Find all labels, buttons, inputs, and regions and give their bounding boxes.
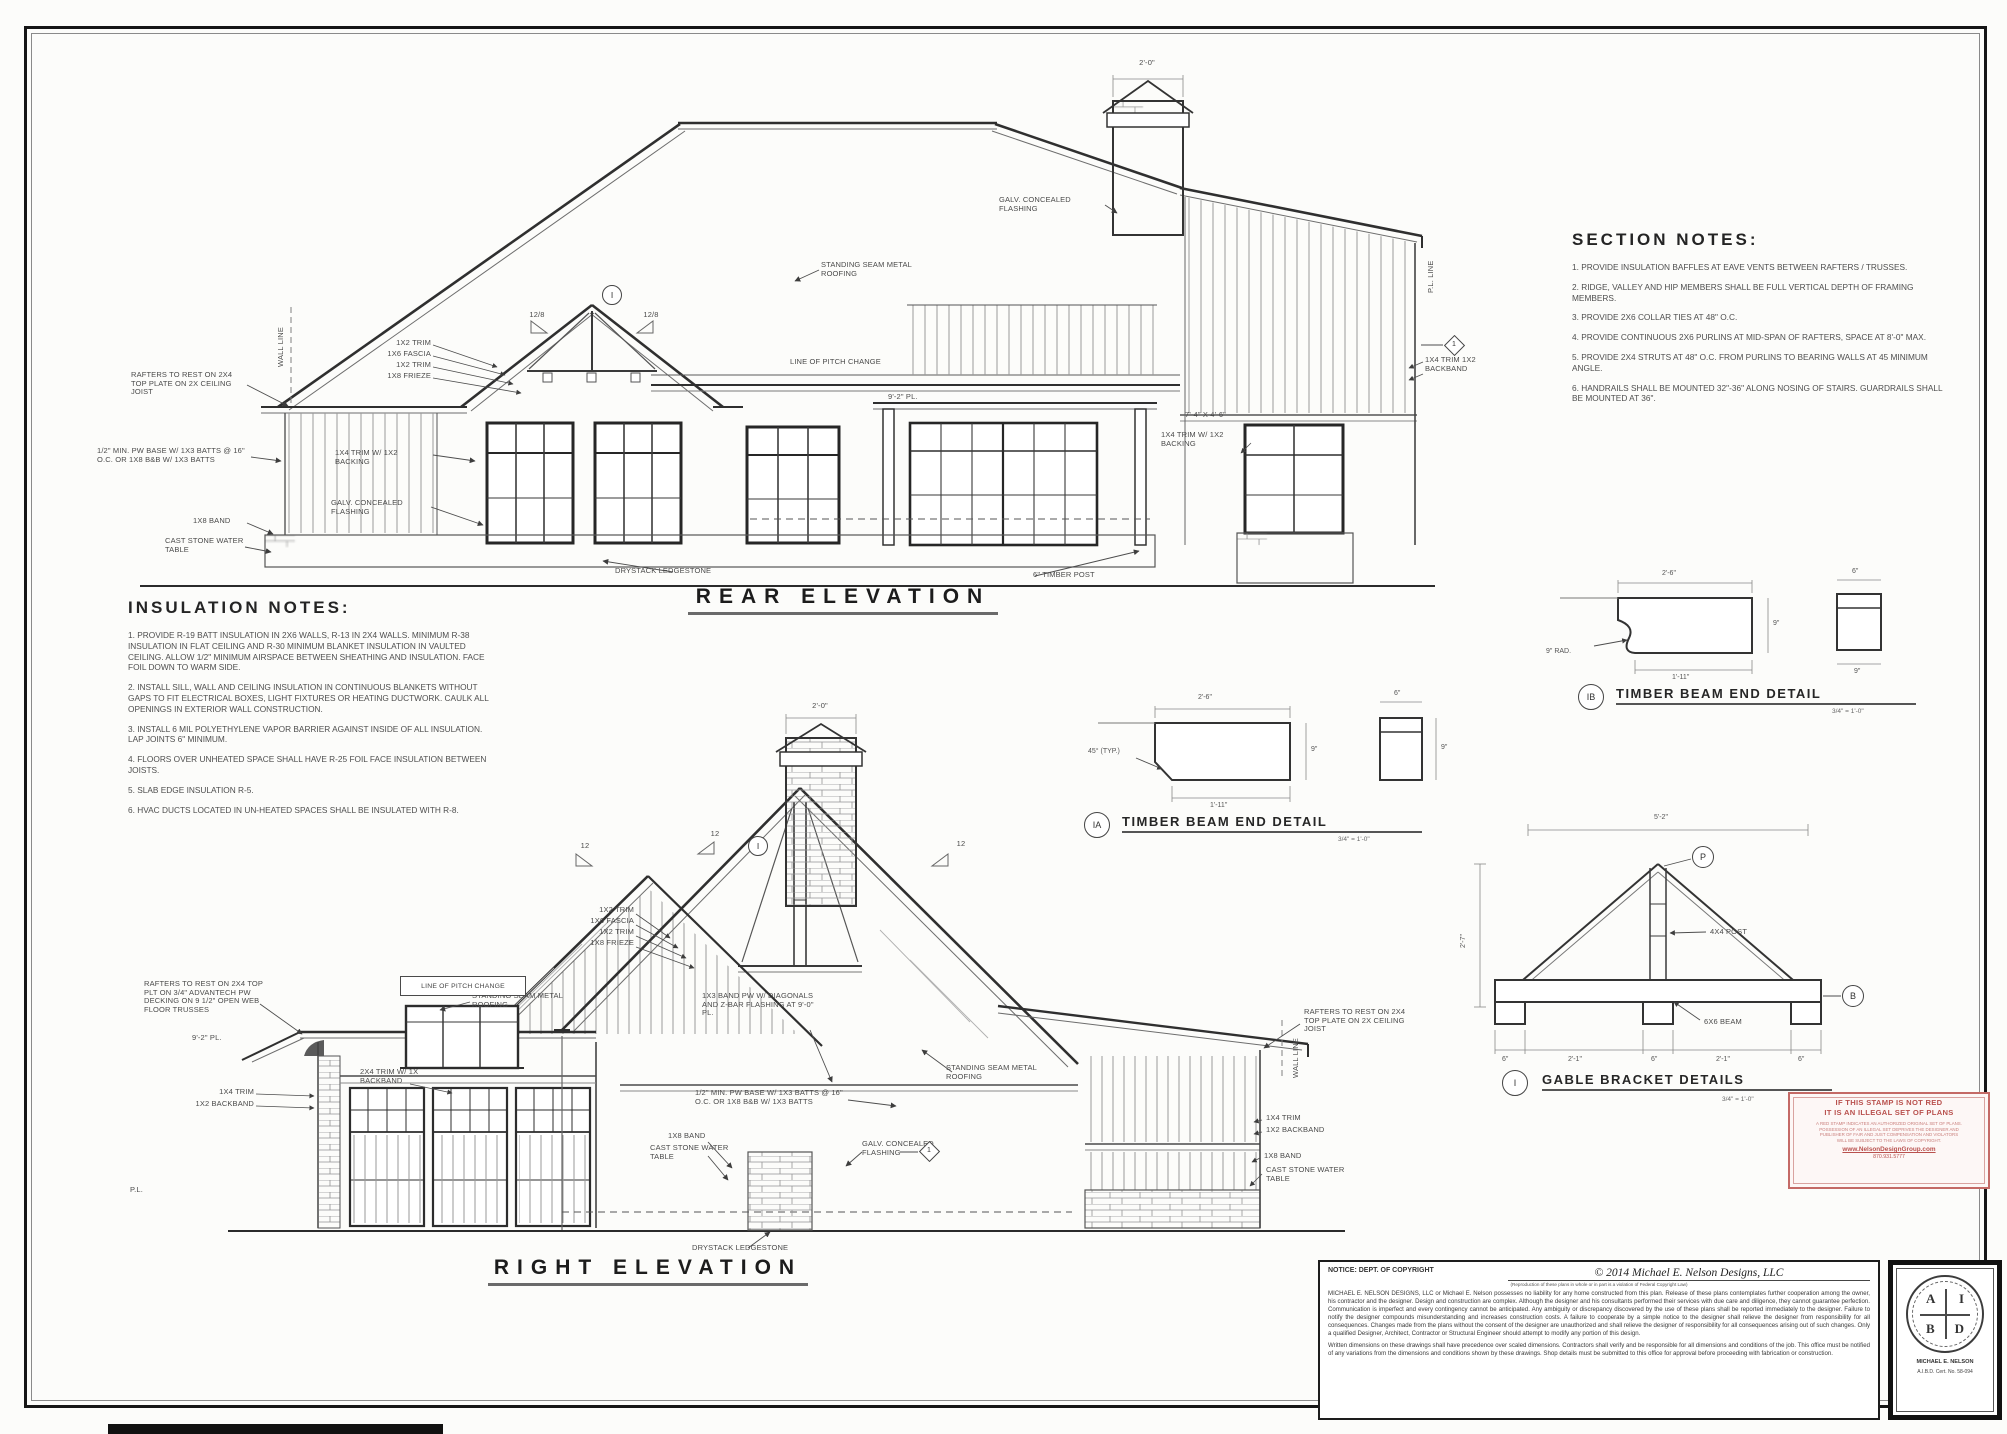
callout-plate: 9'-2" PL.: [888, 393, 948, 402]
gable-dim-top: 5'-2": [1654, 814, 1668, 821]
section-note-4: 4. PROVIDE CONTINUOUS 2X6 PURLINS AT MID…: [1572, 332, 1952, 343]
callout-rafters-ceiling: RAFTERS TO REST ON 2X4 TOP PLATE ON 2X C…: [1304, 1008, 1416, 1034]
stamp-small-3: PUBLISHER OF FAIR AND JUST COMPENSATION …: [1796, 1132, 1982, 1138]
section-marker-number: 1: [1447, 341, 1461, 348]
seal-letter-i: I: [1959, 1291, 1964, 1307]
callout-rafters: RAFTERS TO REST ON 2X4 TOP PLATE ON 2X C…: [131, 371, 245, 397]
callout-pw-base: 1/2" MIN. PW BASE W/ 1X3 BATTS @ 16" O.C…: [97, 447, 249, 464]
callout-rafters-floor: RAFTERS TO REST ON 2X4 TOP PLT ON 3/4" A…: [144, 980, 274, 1015]
dim-top-b: 2'-6": [1662, 570, 1676, 577]
gable-bracket-marker: I: [602, 285, 622, 305]
callout-trim14-backband: 1X4 TRIM 1X2 BACKBAND: [1425, 356, 1497, 373]
copyright-body-2: Written dimensions on these drawings sha…: [1328, 1342, 1870, 1358]
callout-wall-line: WALL LINE: [277, 327, 286, 367]
callout-seam-roofing: STANDING SEAM METAL ROOFING: [821, 261, 919, 278]
callout-water-table: CAST STONE WATER TABLE: [165, 537, 251, 554]
timber-detail-a-scale: 3/4" = 1'-0": [1338, 836, 1370, 843]
callout-trim12b: 1X2 TRIM: [335, 361, 431, 370]
gable-detail-marker: I: [1502, 1070, 1528, 1096]
insulation-notes: INSULATION NOTES: 1. PROVIDE R-19 BATT I…: [128, 598, 496, 824]
callout-trim12a: 1X2 TRIM: [554, 906, 634, 915]
callout-water-table: CAST STONE WATER TABLE: [650, 1144, 734, 1161]
callout-flashing-chimney: GALV. CONCEALED FLASHING: [999, 196, 1101, 213]
gable-detail-title: GABLE BRACKET DETAILS: [1542, 1072, 1832, 1091]
callout-band: 1X8 BAND: [668, 1132, 728, 1141]
callout-trim14-backing: 1X4 TRIM W/ 1X2 BACKING: [335, 449, 429, 466]
callout-band: 1X8 BAND: [193, 517, 253, 526]
seal-cross-horizontal: [1920, 1314, 1970, 1316]
callout-trim12b: 1X2 TRIM: [538, 928, 634, 937]
pitch-mark-2: 12: [702, 830, 728, 839]
copyright-subtitle: (Reproduction of these plans in whole or…: [1328, 1282, 1870, 1287]
gable-dim-left: 2'-7": [1460, 934, 1467, 948]
chimney-dim: 2'-0": [794, 702, 846, 711]
detail-marker-ia: IA: [1084, 812, 1110, 838]
dim-side-b: 9": [1773, 620, 1779, 627]
section-note-6: 6. HANDRAILS SHALL BE MOUNTED 32"-36" AL…: [1572, 383, 1952, 405]
seal-cert-number: A.I.B.D. Cert. No. 58-094: [1893, 1369, 1997, 1375]
timber-detail-a-title: TIMBER BEAM END DETAIL: [1122, 814, 1422, 833]
callout-backband-2: 1X2 BACKBAND: [1266, 1126, 1351, 1135]
stamp-line-1: IF THIS STAMP IS NOT RED: [1796, 1098, 1982, 1108]
dim-side-a: 9": [1311, 746, 1317, 753]
gable-dim-b1: 6": [1502, 1056, 1508, 1063]
drawing-sheet: RAFTERS TO REST ON 2X4 TOP PLATE ON 2X C…: [0, 0, 2007, 1434]
callout-window-dim: 7'-4" X 4'-6": [1185, 411, 1269, 420]
gable-dim-b3: 6": [1651, 1056, 1657, 1063]
detail-marker-ib: IB: [1578, 684, 1604, 710]
copyright-title: © 2014 Michael E. Nelson Designs, LLC: [1508, 1267, 1870, 1281]
gable-beam-label: 6X6 BEAM: [1704, 1018, 1764, 1027]
section-marker-number: 1: [922, 1147, 936, 1154]
callout-backband: 1X2 BACKBAND: [158, 1100, 254, 1109]
callout-pl: P.L.: [130, 1186, 160, 1195]
dim-end-h-b: 9": [1854, 668, 1860, 675]
callout-frieze: 1X8 FRIEZE: [530, 939, 634, 948]
pitch-change-box: LINE OF PITCH CHANGE: [400, 976, 526, 996]
timber-detail-b-scale: 3/4" = 1'-0": [1832, 708, 1864, 715]
insulation-note-4: 4. FLOORS OVER UNHEATED SPACE SHALL HAVE…: [128, 754, 496, 776]
section-notes: SECTION NOTES: 1. PROVIDE INSULATION BAF…: [1572, 230, 1952, 413]
section-notes-title: SECTION NOTES:: [1572, 230, 1952, 250]
gable-post-label: 4X4 POST: [1710, 928, 1770, 937]
right-elevation-title: RIGHT ELEVATION: [488, 1256, 808, 1286]
scan-artifact-bar: [108, 1424, 443, 1434]
callout-timber-post: 6" TIMBER POST: [1033, 571, 1125, 580]
callout-trim14-2: 1X4 TRIM: [1266, 1114, 1326, 1123]
gable-marker-p: P: [1692, 846, 1714, 868]
seal-letter-a: A: [1926, 1291, 1935, 1307]
callout-band-2: 1X8 BAND: [1264, 1152, 1319, 1161]
section-note-1: 1. PROVIDE INSULATION BAFFLES AT EAVE VE…: [1572, 262, 1952, 273]
dim-bottom-a: 1'-11": [1210, 802, 1227, 809]
aibd-seal-icon: A I B D: [1906, 1275, 1984, 1353]
callout-flashing: GALV. CONCEALED FLASHING: [862, 1140, 958, 1157]
callout-ledgestone: DRYSTACK LEDGESTONE: [615, 567, 745, 576]
insulation-note-5: 5. SLAB EDGE INSULATION R-5.: [128, 785, 496, 796]
seal-letter-d: D: [1955, 1321, 1964, 1337]
insulation-note-6: 6. HVAC DUCTS LOCATED IN UN-HEATED SPACE…: [128, 805, 496, 816]
rear-elevation-title: REAR ELEVATION: [688, 585, 998, 615]
copyright-stamp: IF THIS STAMP IS NOT RED IT IS AN ILLEGA…: [1788, 1092, 1990, 1189]
copyright-block: NOTICE: DEPT. OF COPYRIGHT © 2014 Michae…: [1318, 1260, 1880, 1420]
callout-flashing-porch: GALV. CONCEALED FLASHING: [331, 499, 429, 516]
gable-dim-b4: 2'-1": [1716, 1056, 1730, 1063]
insulation-note-1: 1. PROVIDE R-19 BATT INSULATION IN 2X6 W…: [128, 630, 496, 673]
dim-bottom-b: 1'-11": [1672, 674, 1689, 681]
gable-dim-b5: 6": [1798, 1056, 1804, 1063]
pitch-mark-left: 12/8: [521, 311, 553, 320]
designer-seal: A I B D MICHAEL E. NELSON A.I.B.D. Cert.…: [1888, 1260, 2002, 1420]
dim-end-h-a: 9": [1441, 744, 1447, 751]
timber-detail-b-title: TIMBER BEAM END DETAIL: [1616, 686, 1916, 705]
stamp-phone: 870.931.5777: [1796, 1154, 1982, 1160]
insulation-note-3: 3. INSTALL 6 MIL POLYETHYLENE VAPOR BARR…: [128, 724, 496, 746]
gable-detail-scale: 3/4" = 1'-0": [1722, 1096, 1754, 1103]
callout-fascia: 1X6 FASCIA: [343, 350, 431, 359]
dim-radius-b: 9" RAD.: [1546, 648, 1598, 655]
dim-angle-a: 45° (TYP.): [1088, 748, 1136, 755]
dim-end-w-b: 6": [1852, 568, 1858, 575]
copyright-body-1: MICHAEL E. NELSON DESIGNS, LLC or Michae…: [1328, 1290, 1870, 1339]
stamp-line-2: IT IS AN ILLEGAL SET OF PLANS: [1796, 1108, 1982, 1118]
section-note-5: 5. PROVIDE 2X4 STRUTS AT 48" O.C. FROM P…: [1572, 352, 1952, 374]
callout-water-table-2: CAST STONE WATER TABLE: [1266, 1166, 1346, 1183]
callout-frieze: 1X8 FRIEZE: [327, 372, 431, 381]
insulation-note-2: 2. INSTALL SILL, WALL AND CEILING INSULA…: [128, 682, 496, 714]
rear-elevation-drawing: [95, 55, 1495, 615]
pitch-mark-3: 12: [948, 840, 974, 849]
timber-beam-detail-b: 2'-6" 1'-11" 9" 9" RAD. 6" 9" IB TIMBER …: [1532, 568, 1972, 718]
dim-end-w-a: 6": [1394, 690, 1400, 697]
gable-bracket-detail: 5'-2" 2'-7" 6" 2'-1" 6" 2'-1" 6" 4X4 POS…: [1440, 812, 1950, 1112]
callout-wall-line: WALL LINE: [1292, 1038, 1301, 1078]
callout-trim24-backband: 2X4 TRIM W/ 1X BACKBAND: [360, 1068, 456, 1085]
gable-marker-b: B: [1842, 985, 1864, 1007]
callout-pw-base: 1/2" MIN. PW BASE W/ 1X3 BATTS @ 16" O.C…: [695, 1089, 847, 1106]
section-note-2: 2. RIDGE, VALLEY AND HIP MEMBERS SHALL B…: [1572, 282, 1952, 304]
callout-trim12a: 1X2 TRIM: [351, 339, 431, 348]
callout-trim14: 1X4 TRIM: [174, 1088, 254, 1097]
seal-letter-b: B: [1926, 1321, 1935, 1337]
gable-bracket-marker: I: [748, 836, 768, 856]
pitch-mark-1: 12: [572, 842, 598, 851]
seal-name: MICHAEL E. NELSON: [1893, 1359, 1997, 1365]
dim-top-a: 2'-6": [1198, 694, 1212, 701]
gable-dim-b2: 2'-1": [1568, 1056, 1582, 1063]
insulation-notes-title: INSULATION NOTES:: [128, 598, 496, 618]
rear-elevation: RAFTERS TO REST ON 2X4 TOP PLATE ON 2X C…: [95, 55, 1495, 615]
callout-pitch-change: LINE OF PITCH CHANGE: [790, 358, 900, 367]
callout-band-flash: 1X3 BAND PW W/ DIAGONALS AND Z-BAR FLASH…: [702, 992, 814, 1018]
stamp-small-1: A RED STAMP INDICATES AN AUTHORIZED ORIG…: [1796, 1121, 1982, 1127]
section-note-3: 3. PROVIDE 2X6 COLLAR TIES AT 48" O.C.: [1572, 312, 1952, 323]
chimney-dim: 2'-0": [1121, 59, 1173, 68]
callout-plate: 9'-2" PL.: [192, 1034, 247, 1043]
copyright-notice: NOTICE: DEPT. OF COPYRIGHT: [1328, 1267, 1508, 1281]
callout-ledgestone: DRYSTACK LEDGESTONE: [692, 1244, 822, 1253]
callout-pl-line: P.L. LINE: [1427, 261, 1436, 293]
callout-fascia: 1X6 FASCIA: [546, 917, 634, 926]
callout-seam-roofing-2: STANDING SEAM METAL ROOFING: [946, 1064, 1054, 1081]
stamp-small-4: WILL BE SUBJECT TO THE LAWS OF COPYRIGHT…: [1796, 1138, 1982, 1144]
callout-trim14-backing-2: 1X4 TRIM W/ 1X2 BACKING: [1161, 431, 1249, 448]
stamp-url: www.NelsonDesignGroup.com: [1796, 1146, 1982, 1153]
pitch-mark-right: 12/8: [635, 311, 667, 320]
